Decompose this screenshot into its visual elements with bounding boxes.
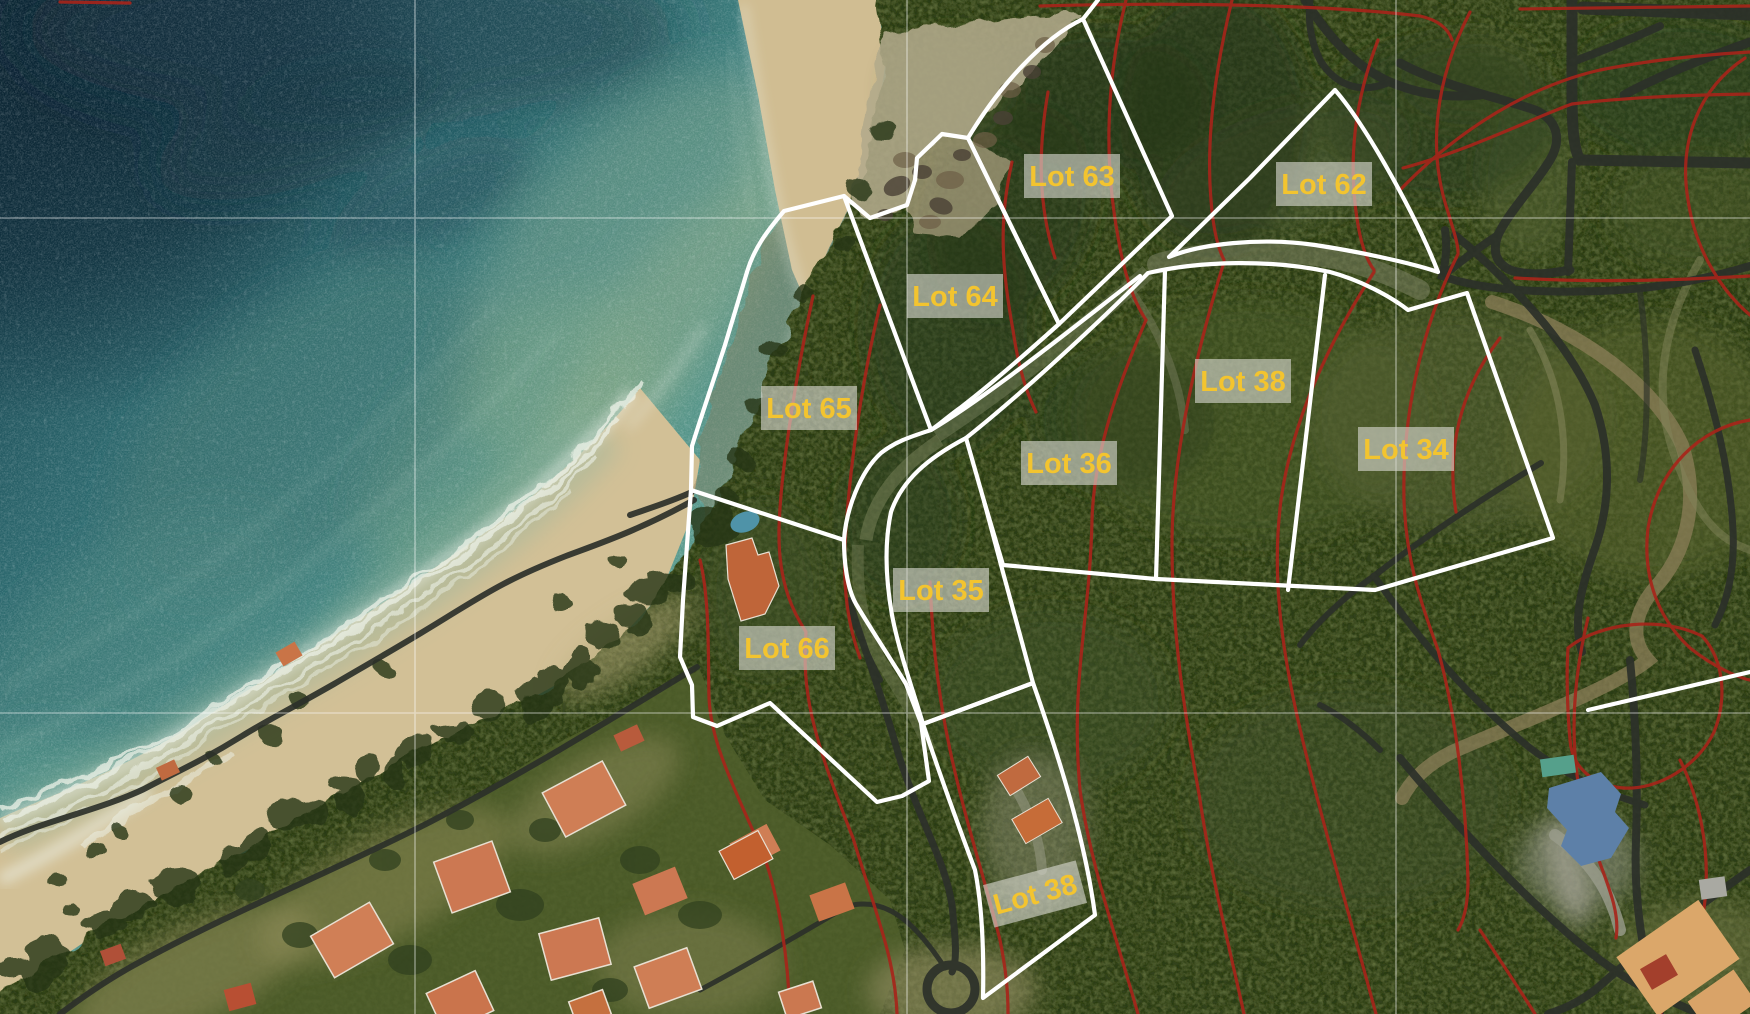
svg-text:Lot 35: Lot 35 xyxy=(898,575,983,607)
svg-text:Lot 34: Lot 34 xyxy=(1363,434,1448,466)
svg-text:Lot 62: Lot 62 xyxy=(1281,169,1366,201)
svg-text:Lot 36: Lot 36 xyxy=(1026,448,1111,480)
svg-text:Lot 66: Lot 66 xyxy=(744,633,829,665)
svg-text:Lot 63: Lot 63 xyxy=(1029,161,1114,193)
svg-text:Lot 65: Lot 65 xyxy=(766,393,851,425)
svg-text:Lot 64: Lot 64 xyxy=(912,281,997,313)
svg-text:Lot 38: Lot 38 xyxy=(1200,366,1285,398)
